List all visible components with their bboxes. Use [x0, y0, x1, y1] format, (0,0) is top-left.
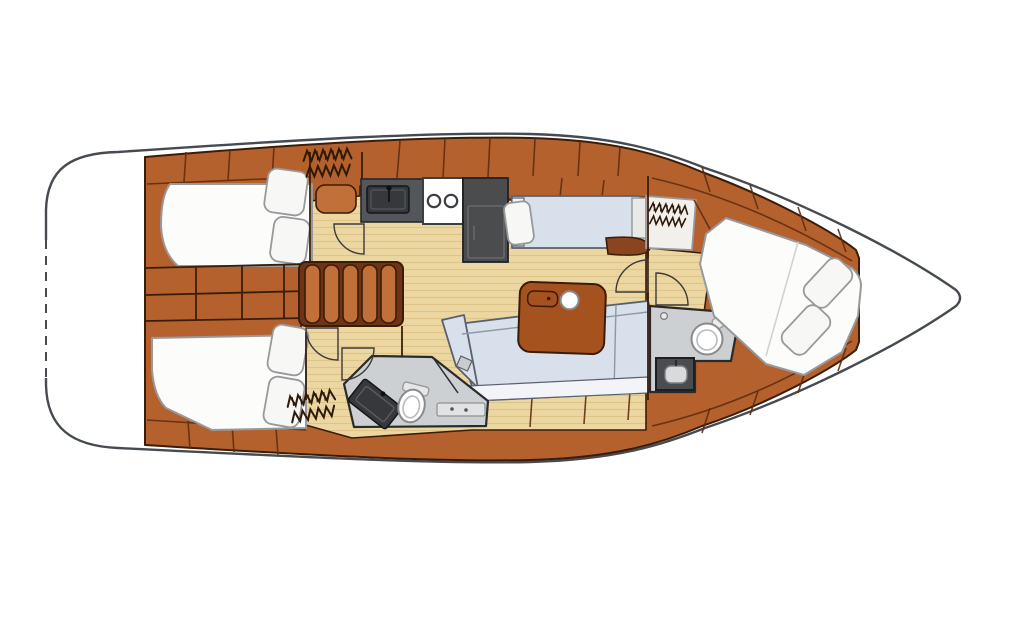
vent-icon [661, 313, 668, 320]
sink-basin [665, 366, 687, 383]
salon-table [518, 282, 606, 355]
pillow [266, 323, 310, 377]
nav-settee [503, 196, 650, 255]
companionway-steps [299, 262, 403, 326]
stair-tread [362, 265, 377, 323]
pillow [263, 167, 309, 216]
faucet-dot-icon [450, 407, 454, 411]
burner-icon [445, 195, 457, 207]
stair-tread [305, 265, 320, 323]
burner-icon [428, 195, 440, 207]
faucet-dot-icon [464, 408, 468, 412]
table-top [518, 282, 606, 355]
yacht-floor-plan [0, 0, 1024, 629]
faucet-icon [386, 185, 391, 190]
stair-tread [381, 265, 396, 323]
floor-plan-canvas [0, 0, 1024, 629]
vanity-seat [316, 185, 356, 213]
shower-bench [437, 403, 485, 416]
mast-post [560, 291, 579, 310]
pillow [269, 216, 311, 266]
stair-tread [324, 265, 339, 323]
stair-tread [343, 265, 358, 323]
pillow [503, 200, 535, 245]
refrigerator [463, 178, 508, 262]
settee-arm [606, 237, 650, 255]
